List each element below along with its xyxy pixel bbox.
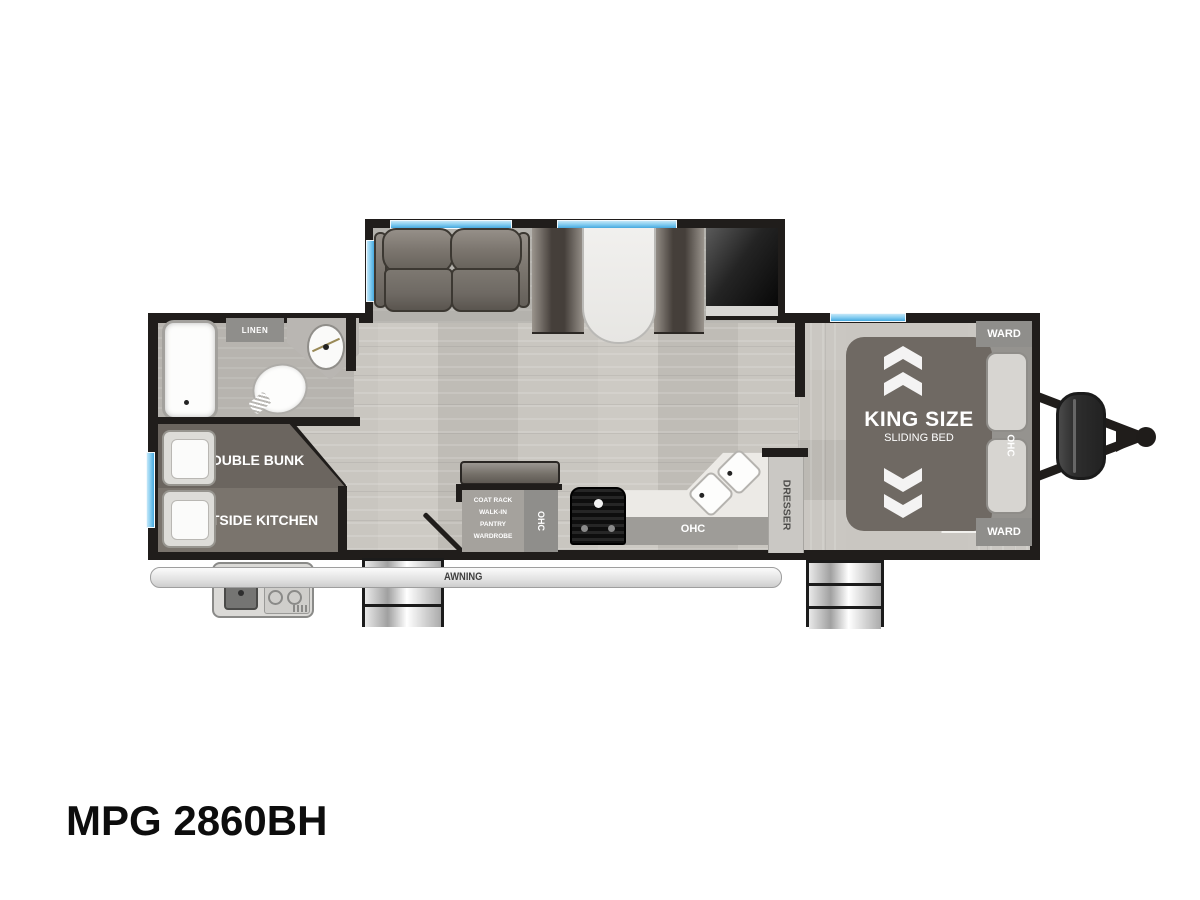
burner-grid	[293, 605, 307, 612]
sofa-seat-cushion	[451, 268, 520, 312]
bunk-pillow	[171, 439, 209, 479]
tub-drain	[184, 400, 189, 405]
slide-arrow-up-icon	[884, 346, 922, 370]
step	[809, 609, 881, 629]
dresser-label: DRESSER	[780, 480, 792, 531]
bunkroom-window	[146, 452, 155, 528]
slide-arrow-down-icon	[884, 468, 922, 492]
linen-cabinet: LINEN	[226, 318, 284, 342]
ohc-kitchen-label: OHC	[668, 523, 718, 535]
bathroom-wall	[346, 313, 356, 371]
hitch-ball	[1136, 427, 1156, 447]
bedroom-ohc: OHC	[1000, 420, 1020, 470]
dinette-bench-right	[654, 228, 704, 334]
linen-label: LINEN	[242, 326, 269, 335]
bedroom-partition-wall	[795, 313, 805, 397]
outside-sink-drain	[238, 590, 244, 596]
sink-drain	[698, 492, 705, 499]
awning-label: AWNING	[444, 571, 482, 583]
burner	[608, 525, 615, 532]
burner	[287, 590, 302, 605]
range-stove	[570, 487, 626, 545]
outside-burners	[264, 584, 310, 614]
entertainment-center	[706, 228, 778, 308]
king-sliding-bed: KING SIZE SLIDING BED	[846, 337, 992, 531]
pantry-label: COAT RACK WALK-IN PANTRY WARDROBE	[462, 495, 524, 543]
bedroom-window	[830, 313, 906, 322]
bunk-mattress	[162, 430, 216, 486]
bathtub	[162, 320, 218, 420]
dresser: DRESSER	[768, 457, 804, 553]
wardrobe-rear: WARD	[976, 518, 1032, 546]
dinette-bench-left	[532, 228, 584, 334]
burner	[581, 525, 588, 532]
slide-arrow-down-icon	[884, 494, 922, 518]
dresser-wall-cap	[762, 448, 808, 457]
overhead-cabinet-pantry: OHC	[524, 490, 558, 552]
wardrobe-front: WARD	[976, 321, 1032, 347]
slideout-step-edge	[706, 306, 778, 320]
coat-rack-shelf	[460, 461, 560, 485]
king-size-label: KING SIZE	[846, 408, 992, 432]
sink-drain	[726, 470, 733, 477]
tank-divider	[1073, 399, 1076, 473]
dinette-table	[582, 228, 656, 344]
floorplan-canvas: LINEN DOUBLE BUNK OUTSIDE KITCHEN COAT R…	[0, 0, 1200, 900]
bunkroom-wall	[338, 486, 347, 553]
burner	[268, 590, 283, 605]
step	[809, 586, 881, 609]
model-title: MPG 2860BH	[66, 797, 327, 845]
sofa-seat-cushion	[384, 268, 453, 312]
bunk-pillow	[171, 500, 209, 540]
propane-tanks	[1056, 392, 1106, 480]
burner	[594, 499, 603, 508]
faucet	[323, 344, 329, 350]
walk-in-pantry: COAT RACK WALK-IN PANTRY WARDROBE OHC	[462, 490, 558, 552]
bunk-mattress	[162, 490, 216, 548]
slide-arrow-up-icon	[884, 372, 922, 396]
sofa	[374, 228, 530, 314]
entry-steps-right	[806, 560, 884, 627]
sliding-bed-label: SLIDING BED	[846, 432, 992, 444]
step	[365, 607, 441, 627]
step	[809, 563, 881, 586]
